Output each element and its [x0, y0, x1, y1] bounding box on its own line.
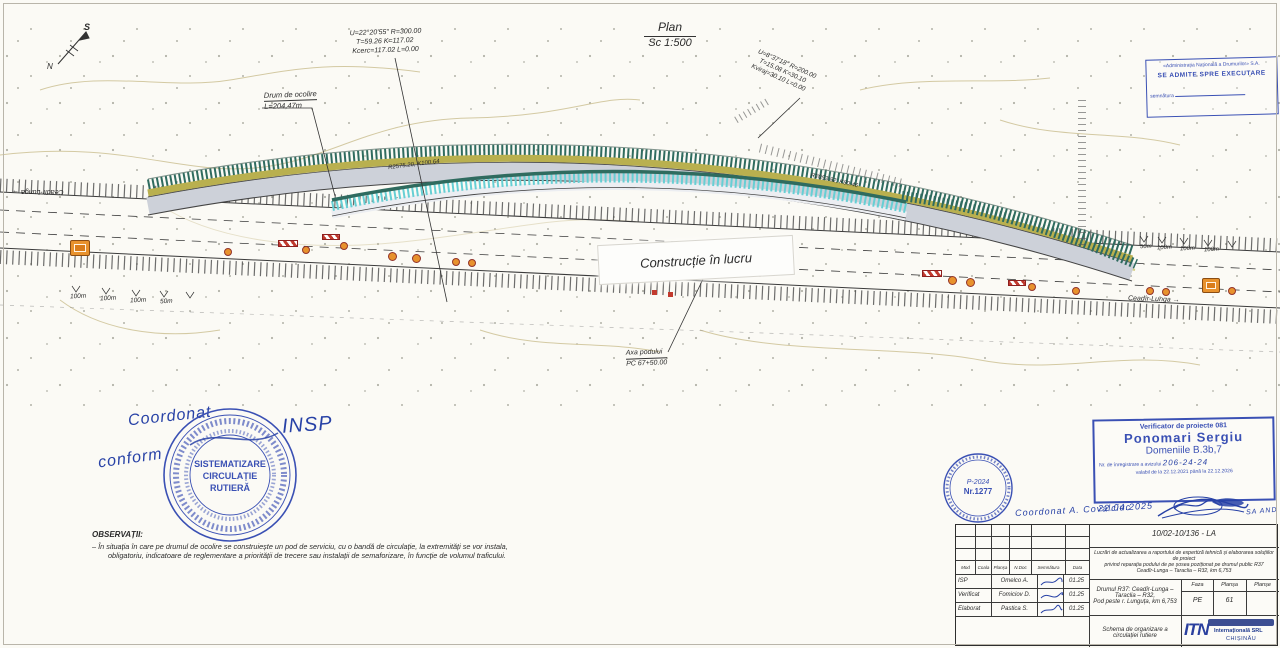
- logo-sub2: CHIȘINĂU: [1226, 636, 1256, 642]
- notes-line2: obligatoriu, indicatoare de reglementare…: [92, 551, 522, 560]
- approval-stamp-org: «Administrația Națională a Drumurilor» S…: [1149, 60, 1273, 69]
- phase-header-plansa: Planșa: [1214, 582, 1245, 588]
- row-signature-cell: [1038, 603, 1064, 617]
- verifier-validity: valabil de la 22.12.2021 până la 22.12.2…: [1099, 468, 1269, 477]
- distance-left-1: 100m: [70, 293, 87, 301]
- barrier-symbol: [322, 234, 340, 240]
- notes-block: OBSERVAȚII: – În situația în care pe dru…: [92, 530, 522, 560]
- sheet-number-value: 61: [1214, 597, 1245, 604]
- signature: [1039, 576, 1063, 588]
- notes-line1: – În situația în care pe drumul de ocoli…: [92, 542, 522, 551]
- phase-value: PE: [1182, 597, 1213, 604]
- road-sign-symbol: [1146, 287, 1154, 295]
- road-sign-symbol: [224, 248, 232, 256]
- direction-label-left: Ceadîr-Lunga →: [12, 188, 64, 195]
- round-stamp-line1: SISTEMATIZARE: [194, 459, 266, 469]
- row-name: Omelco A.: [992, 575, 1038, 589]
- description-line3: Ceadîr-Lunga – Taraclia – R32, km 6,753: [1092, 568, 1276, 574]
- road-sign-large-left: [70, 240, 90, 256]
- project-description: Lucrări de actualizarea a raportului de …: [1092, 550, 1276, 574]
- logo-text: ITN: [1184, 620, 1208, 640]
- verifier-reg-value: 206-24-24: [1163, 458, 1209, 468]
- signature-line: [1175, 94, 1245, 97]
- col-header-coala: Coala: [976, 561, 992, 575]
- signature: [1039, 604, 1063, 616]
- row-role: ISP: [956, 575, 992, 589]
- road-sign-symbol: [302, 246, 310, 254]
- detour-label-group: Drum de ocolire L=204,47m: [264, 89, 318, 111]
- row-date: 01.25: [1064, 603, 1089, 617]
- road-sign-large-right: [1202, 278, 1220, 293]
- road-sign-symbol: [1162, 288, 1170, 296]
- round-stamp-large: SISTEMATIZARE CIRCULAȚIE RUTIERĂ: [160, 405, 300, 545]
- compass-s-label: S: [84, 22, 90, 32]
- road-sign-symbol: [412, 254, 421, 263]
- round-stamp-line2: CIRCULAȚIE: [203, 471, 258, 481]
- col-header-data: Data: [1066, 561, 1089, 575]
- row-name: Pastica S.: [992, 603, 1038, 617]
- row-date: 01.25: [1064, 589, 1089, 603]
- road-sign-symbol: [452, 258, 460, 266]
- row-name: Fomiciov D.: [992, 589, 1038, 603]
- sheet-title: Schema de organizare a circulației rutie…: [1090, 627, 1180, 639]
- curve-data-left: U=22°20'55" R=300.00 T=59.26 K=117.02 Kc…: [350, 27, 423, 56]
- round-stamp-line3: RUTIERĂ: [210, 483, 250, 493]
- road-sign-symbol: [1228, 287, 1236, 295]
- title-block-header-row: Mod Coala Planșa N.Doc Semnătura Data: [956, 561, 1089, 575]
- title-block-empty-rows: [956, 525, 1089, 537]
- doc-number: 10/02-10/136 - LA: [1089, 529, 1279, 538]
- title-block-row-verificat: Verificat Fomiciov D. 01.25: [956, 589, 1089, 603]
- col-header-semnatura: Semnătura: [1032, 561, 1066, 575]
- distance-right-3: 100m: [1180, 246, 1195, 253]
- object-cell: Drumul R37: Ceadîr-Lunga – Taraclia – R3…: [1090, 587, 1180, 605]
- road-sign-symbol: [966, 278, 975, 287]
- road-sign-symbol: [468, 259, 476, 267]
- object-line2: Pod peste r. Lunguța, km 6,753: [1090, 599, 1180, 605]
- barrier-symbol: [278, 240, 298, 247]
- distance-left-4: 50m: [160, 298, 173, 306]
- row-signature-cell: [1038, 575, 1064, 589]
- round-stamp-small-line1: P-2024: [967, 479, 990, 486]
- logo-sub1: Internațională SRL: [1214, 628, 1263, 634]
- barrier-symbol: [1008, 280, 1026, 286]
- approval-stamp-signature-label: semnătura: [1150, 93, 1174, 100]
- row-signature-cell: [1038, 589, 1064, 603]
- distance-left-2: 100m: [100, 295, 117, 303]
- plan-scale: Sc 1:500: [644, 36, 696, 49]
- distance-right-4: 100m: [1204, 247, 1219, 254]
- phase-header-faza: Faza: [1182, 582, 1213, 588]
- notes-heading: OBSERVAȚII:: [92, 530, 522, 539]
- object-line1: Drumul R37: Ceadîr-Lunga – Taraclia – R3…: [1090, 587, 1180, 599]
- road-sign-symbol: [340, 242, 348, 250]
- red-marker: [652, 290, 657, 295]
- road-sign-symbol: [948, 276, 957, 285]
- phase-header-planse: Planșe: [1247, 582, 1278, 588]
- bridge-axis-station: PC 67+50.00: [626, 358, 667, 368]
- verifier-stamp: Verificator de proiecte 081 Ponomari Ser…: [1092, 416, 1275, 503]
- title-block-row-isp: ISP Omelco A. 01.25: [956, 575, 1089, 589]
- col-header-plansa: Planșa: [992, 561, 1010, 575]
- col-header-mod: Mod: [956, 561, 976, 575]
- approval-stamp: «Administrația Națională a Drumurilor» S…: [1145, 56, 1278, 117]
- title-block-row-elaborat: Elaborat Pastica S. 01.25: [956, 603, 1089, 617]
- signature-swoosh: [1152, 492, 1252, 522]
- col-header-ndoc: N.Doc: [1010, 561, 1032, 575]
- drawing-sheet: S N Plan Sc 1:500 U=22°20'55" R=300.00 T…: [0, 0, 1280, 648]
- detour-length: L=204,47m: [264, 100, 317, 111]
- road-sign-symbol: [1072, 287, 1080, 295]
- row-date: 01.25: [1064, 575, 1089, 589]
- bridge-axis-label-group: Axa podului PC 67+50.00: [626, 347, 668, 368]
- road-sign-symbol: [388, 252, 397, 261]
- round-stamp-small: P-2024 Nr.1277: [938, 448, 1018, 528]
- plan-title: Plan: [640, 20, 700, 34]
- distance-right-1: 50m: [1140, 244, 1152, 251]
- description-line1: Lucrări de actualizarea a raportului de …: [1092, 550, 1276, 562]
- verifier-reg-label: Nr. de înregistrare a avizului: [1099, 461, 1161, 468]
- signature: [1039, 590, 1063, 602]
- verifier-stamp-name: Ponomari Sergiu: [1098, 429, 1268, 447]
- road-sign-symbol: [1028, 283, 1036, 291]
- distance-left-3: 100m: [130, 297, 147, 305]
- round-stamp-small-line2: Nr.1277: [964, 487, 993, 496]
- title-block: Mod Coala Planșa N.Doc Semnătura Data IS…: [955, 524, 1278, 646]
- barrier-symbol: [922, 270, 942, 277]
- row-role: Verificat: [956, 589, 992, 603]
- compass-n-label: N: [47, 62, 53, 71]
- red-marker: [668, 292, 673, 297]
- logo-banner: [1208, 619, 1274, 626]
- row-role: Elaborat: [956, 603, 992, 617]
- approval-stamp-text: SE ADMITE SPRE EXECUTARE: [1150, 69, 1274, 79]
- company-logo: ITN Internațională SRL CHIȘINĂU: [1184, 618, 1277, 645]
- distance-right-2: 100m: [1157, 245, 1172, 252]
